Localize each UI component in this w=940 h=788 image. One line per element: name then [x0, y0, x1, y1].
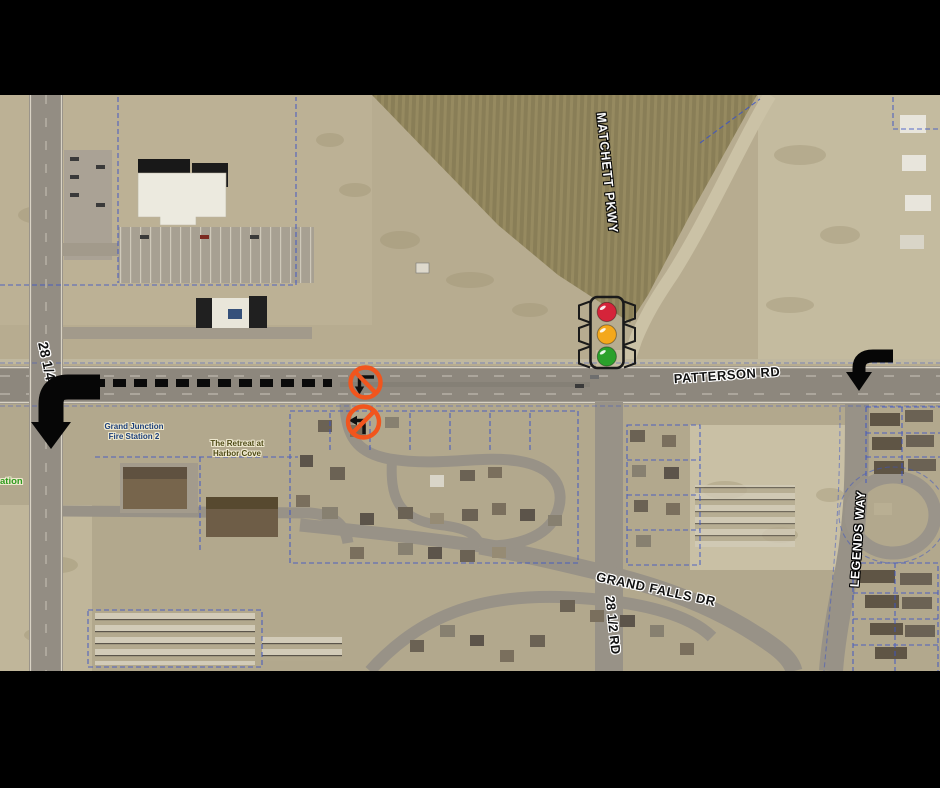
signal-red-light [597, 302, 616, 321]
signal-green-light [597, 347, 616, 366]
annotation-overlay [0, 95, 940, 671]
bottom-letterbox [0, 671, 940, 788]
top-letterbox [0, 0, 940, 95]
route-arrow-right [846, 356, 893, 391]
signal-yellow-light [597, 325, 616, 344]
map-canvas: MATCHETT PKWY PATTERSON RD 28 1/4 LEGEND… [0, 95, 940, 671]
map-screenshot: MATCHETT PKWY PATTERSON RD 28 1/4 LEGEND… [0, 0, 940, 788]
no-left-turn-icon-upper [351, 368, 381, 398]
no-left-turn-icon-lower [348, 407, 379, 438]
traffic-signal-icon [579, 297, 635, 368]
route-arrow-left [31, 387, 100, 449]
